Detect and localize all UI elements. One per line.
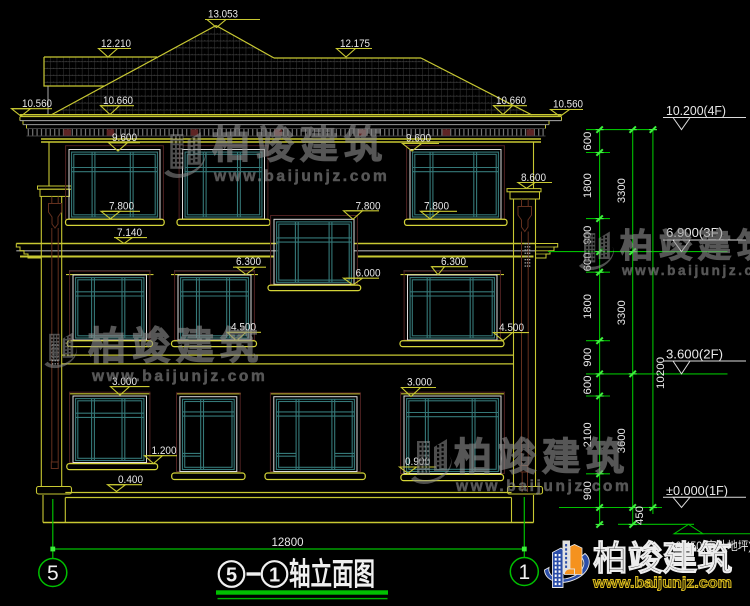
svg-text:450: 450 [634, 506, 646, 525]
svg-text:12800: 12800 [272, 535, 304, 549]
svg-text:5: 5 [47, 562, 59, 585]
svg-text:柏竣建筑: 柏竣建筑 [212, 125, 388, 167]
svg-text:www.baijunjz.com: www.baijunjz.com [592, 575, 732, 592]
svg-text:1800: 1800 [582, 294, 594, 319]
svg-text:3.000: 3.000 [407, 377, 432, 389]
svg-text:±0.000(1F): ±0.000(1F) [666, 483, 728, 498]
svg-text:5: 5 [226, 565, 237, 587]
svg-text:柏竣建筑: 柏竣建筑 [620, 227, 750, 264]
svg-text:10.560: 10.560 [553, 99, 583, 111]
svg-text:柏竣建筑: 柏竣建筑 [88, 326, 264, 368]
svg-text:9.600: 9.600 [406, 133, 431, 145]
svg-text:6.300: 6.300 [236, 256, 261, 268]
svg-text:10200: 10200 [655, 357, 667, 389]
svg-text:1: 1 [518, 561, 530, 584]
svg-text:1800: 1800 [582, 173, 594, 198]
svg-text:3300: 3300 [616, 178, 628, 203]
svg-text:900: 900 [582, 348, 594, 367]
svg-text:3300: 3300 [616, 300, 628, 325]
svg-text:www.baijunjz.com: www.baijunjz.com [621, 263, 750, 278]
svg-text:600: 600 [582, 376, 594, 395]
svg-text:3.600(2F): 3.600(2F) [666, 347, 723, 362]
svg-text:www.baijunjz.com: www.baijunjz.com [213, 168, 389, 185]
svg-text:10.200(4F): 10.200(4F) [666, 103, 726, 118]
svg-text:1: 1 [269, 565, 280, 587]
svg-text:柏竣建筑: 柏竣建筑 [593, 539, 732, 578]
svg-text:www.baijunjz.com: www.baijunjz.com [455, 478, 631, 495]
svg-text:柏竣建筑: 柏竣建筑 [454, 437, 630, 479]
svg-text:轴立面图: 轴立面图 [289, 557, 375, 592]
svg-text:600: 600 [582, 132, 594, 151]
svg-text:www.baijunjz.com: www.baijunjz.com [91, 368, 267, 385]
svg-text:13.053: 13.053 [208, 9, 238, 21]
